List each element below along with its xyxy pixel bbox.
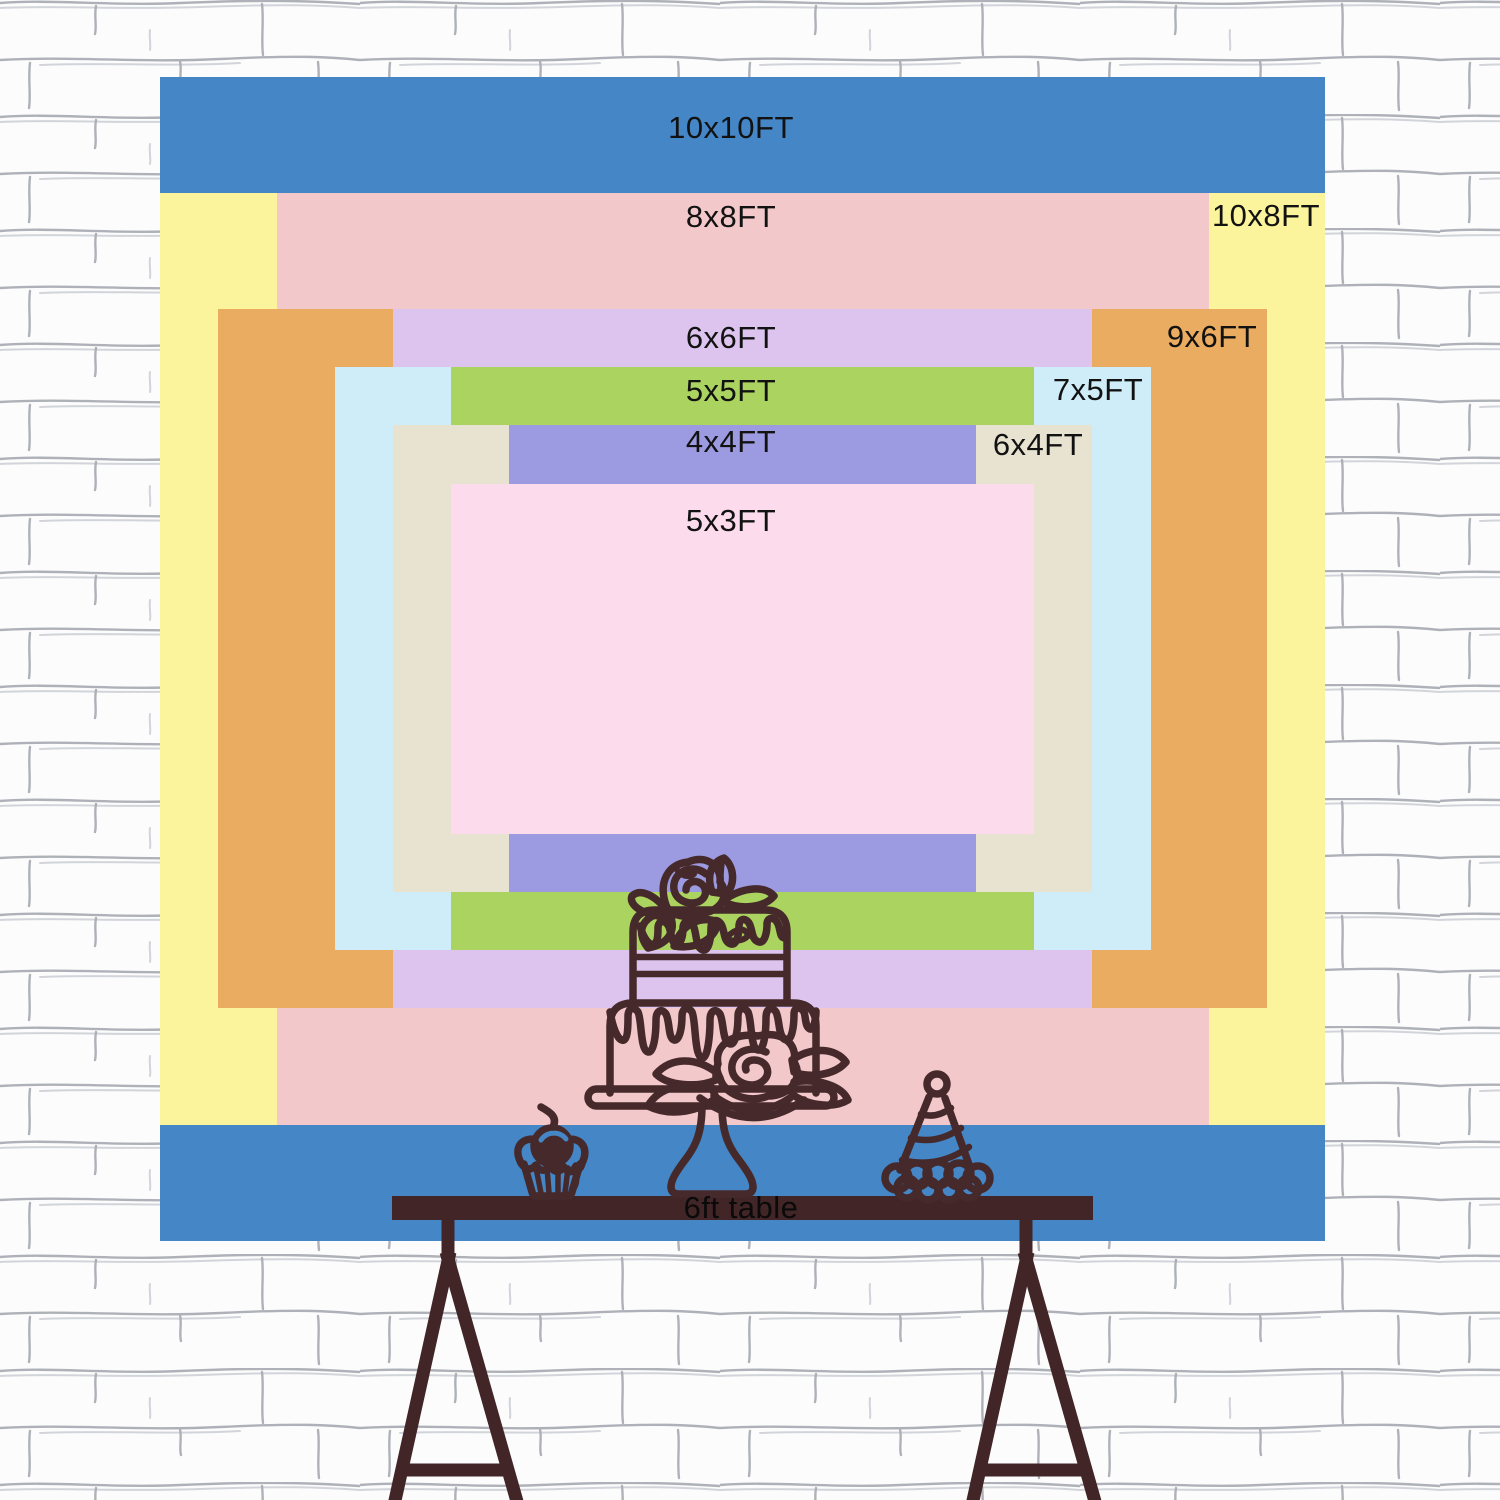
size-label-7x5: 7x5FT (1053, 372, 1143, 408)
backdrop-size-chart: 10x10FT10x8FT8x8FT9x6FT6x6FT7x5FT5x5FT6x… (0, 0, 1500, 1500)
size-label-4x4: 4x4FT (686, 424, 776, 460)
size-label-6x6: 6x6FT (686, 320, 776, 356)
size-label-9x6: 9x6FT (1167, 319, 1257, 355)
size-label-10x10: 10x10FT (668, 110, 794, 146)
table-size-label: 6ft table (684, 1190, 799, 1226)
size-label-10x8: 10x8FT (1212, 198, 1320, 234)
size-label-6x4: 6x4FT (993, 427, 1083, 463)
size-label-5x5: 5x5FT (686, 373, 776, 409)
size-labels: 10x10FT10x8FT8x8FT9x6FT6x6FT7x5FT5x5FT6x… (0, 0, 1500, 1500)
size-label-5x3: 5x3FT (686, 503, 776, 539)
size-label-8x8: 8x8FT (686, 199, 776, 235)
